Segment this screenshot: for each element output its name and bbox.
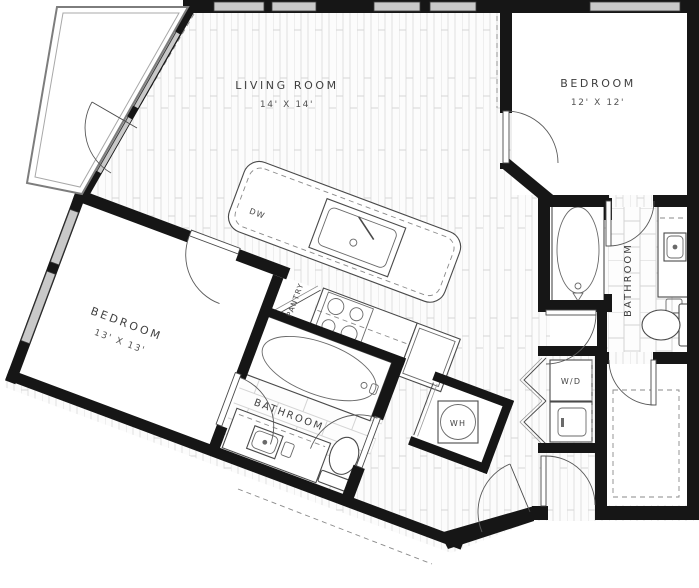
living-room-label: LIVING ROOM: [235, 79, 338, 92]
bedroom-right-dimensions: 12' X 12': [571, 98, 625, 108]
window: [214, 2, 264, 11]
toilet-right-bowl: [642, 310, 680, 340]
floor-plan-drawing: DW: [0, 0, 699, 588]
living-room-dimensions: 14' X 14': [260, 100, 314, 110]
washer-dryer-label: W/D: [561, 377, 581, 386]
linen-nook-floor: [550, 312, 597, 348]
window: [272, 2, 316, 11]
water-heater: WH: [438, 401, 478, 443]
bathroom-right-label: BATHROOM: [623, 243, 634, 317]
sink-drain-icon: [673, 245, 678, 250]
bathroom-right-rear-door-leaf: [651, 360, 656, 405]
window: [430, 2, 476, 11]
window: [374, 2, 420, 11]
patio-floor: [607, 364, 687, 505]
appliance-handle-icon: [561, 418, 564, 427]
water-heater-label: WH: [450, 419, 466, 428]
bedroom-right-door-leaf: [503, 111, 509, 163]
bedroom-right-label: BEDROOM: [560, 77, 636, 90]
window: [590, 2, 680, 11]
linen-door-leaf: [546, 310, 596, 315]
floor-plan-page: DW: [0, 0, 699, 588]
tub-room-fixtures: [552, 204, 604, 304]
bathroom-right-door-leaf: [606, 201, 611, 246]
entry-door-leaf: [541, 456, 546, 506]
